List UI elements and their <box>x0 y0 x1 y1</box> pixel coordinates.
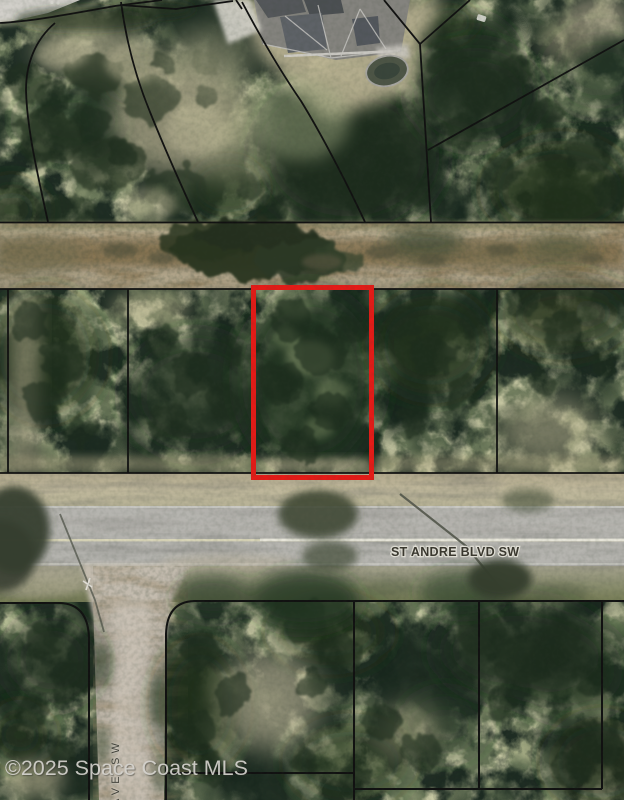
svg-text:©2025 Space Coast MLS: ©2025 Space Coast MLS <box>5 756 248 780</box>
